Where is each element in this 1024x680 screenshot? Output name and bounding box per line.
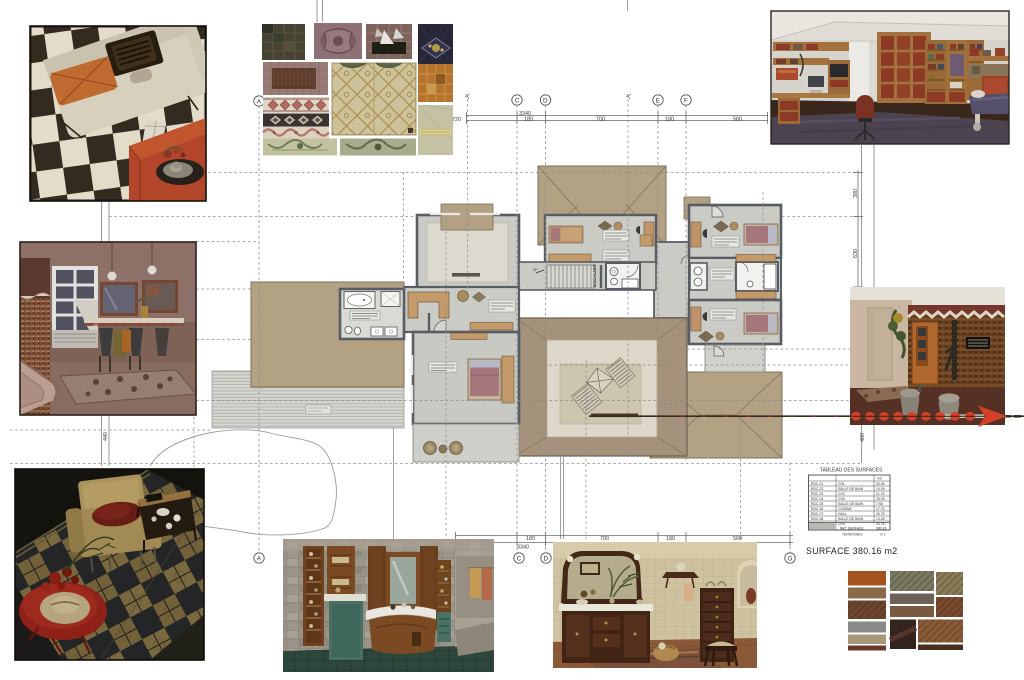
svg-text:SALLE DE BAIN: SALLE DE BAIN — [838, 502, 864, 506]
svg-text:F: F — [684, 97, 688, 104]
svg-text:380: 380 — [853, 189, 859, 198]
svg-text:E: E — [656, 97, 660, 104]
svg-text:C: C — [517, 555, 522, 562]
svg-text:TERRASSES: TERRASSES — [842, 533, 863, 537]
svg-text:C: C — [515, 97, 520, 104]
svg-text:RDC-03: RDC-03 — [811, 492, 823, 496]
svg-text:700: 700 — [600, 536, 609, 542]
svg-text:CH3: CH3 — [838, 497, 845, 501]
svg-text:SURFACE 380.16 m2: SURFACE 380.16 m2 — [806, 546, 898, 556]
svg-text:D: D — [543, 97, 548, 104]
svg-text:CH1: CH1 — [838, 482, 845, 486]
svg-text:RDC-06: RDC-06 — [811, 507, 823, 511]
svg-text:380.16: 380.16 — [876, 527, 886, 531]
svg-text:20.26: 20.26 — [876, 497, 885, 501]
svg-text:440: 440 — [103, 432, 109, 441]
svg-text:630: 630 — [853, 249, 859, 258]
svg-text:RDC-04: RDC-04 — [811, 497, 823, 501]
svg-text:RDC-05: RDC-05 — [811, 502, 823, 506]
svg-text:21.76: 21.76 — [876, 492, 885, 496]
svg-text:G: G — [788, 555, 793, 562]
svg-text:480: 480 — [860, 433, 866, 442]
svg-text:13.28: 13.28 — [876, 517, 885, 521]
svg-text:RDC-08: RDC-08 — [811, 517, 823, 521]
svg-text:180: 180 — [526, 536, 535, 542]
svg-text:SF: SF — [533, 268, 538, 272]
svg-text:RDC-02: RDC-02 — [811, 487, 823, 491]
svg-text:560: 560 — [733, 117, 742, 123]
svg-text:CUISINE: CUISINE — [838, 507, 852, 511]
svg-text:HALL: HALL — [838, 512, 847, 516]
svg-text:D: D — [544, 555, 549, 562]
svg-text:TABLEAU DES SURFACES: TABLEAU DES SURFACES — [820, 468, 883, 474]
svg-text:14.09: 14.09 — [876, 487, 885, 491]
svg-text:A: A — [257, 555, 262, 562]
svg-text:SALLE DE BAIN: SALLE DE BAIN — [838, 487, 864, 491]
svg-text:7.98: 7.98 — [876, 502, 883, 506]
svg-text:560: 560 — [733, 536, 742, 542]
svg-text:CH4: CH4 — [838, 522, 845, 526]
svg-text:SALLE DE BAIN: SALLE DE BAIN — [838, 517, 864, 521]
svg-text:24.76: 24.76 — [876, 522, 885, 526]
svg-text:180: 180 — [666, 536, 675, 542]
svg-text:3340: 3340 — [517, 545, 529, 551]
svg-text:A: A — [257, 98, 262, 105]
svg-text:180: 180 — [524, 117, 533, 123]
svg-text:m2: m2 — [877, 477, 882, 481]
svg-text:m 2: m 2 — [880, 533, 886, 537]
svg-text:RDC-01: RDC-01 — [811, 482, 823, 486]
svg-text:720: 720 — [452, 117, 461, 123]
svg-text:RDC-07: RDC-07 — [811, 512, 823, 516]
svg-text:20.45: 20.45 — [876, 482, 885, 486]
svg-text:ESCALIER: ESCALIER — [592, 264, 597, 287]
svg-text:26.79: 26.79 — [876, 512, 885, 516]
svg-text:700: 700 — [596, 117, 605, 123]
svg-text:180: 180 — [665, 117, 674, 123]
svg-text:17.76: 17.76 — [876, 507, 885, 511]
svg-text:CH2: CH2 — [838, 492, 845, 496]
svg-text:NET SURFACE: NET SURFACE — [840, 527, 864, 531]
